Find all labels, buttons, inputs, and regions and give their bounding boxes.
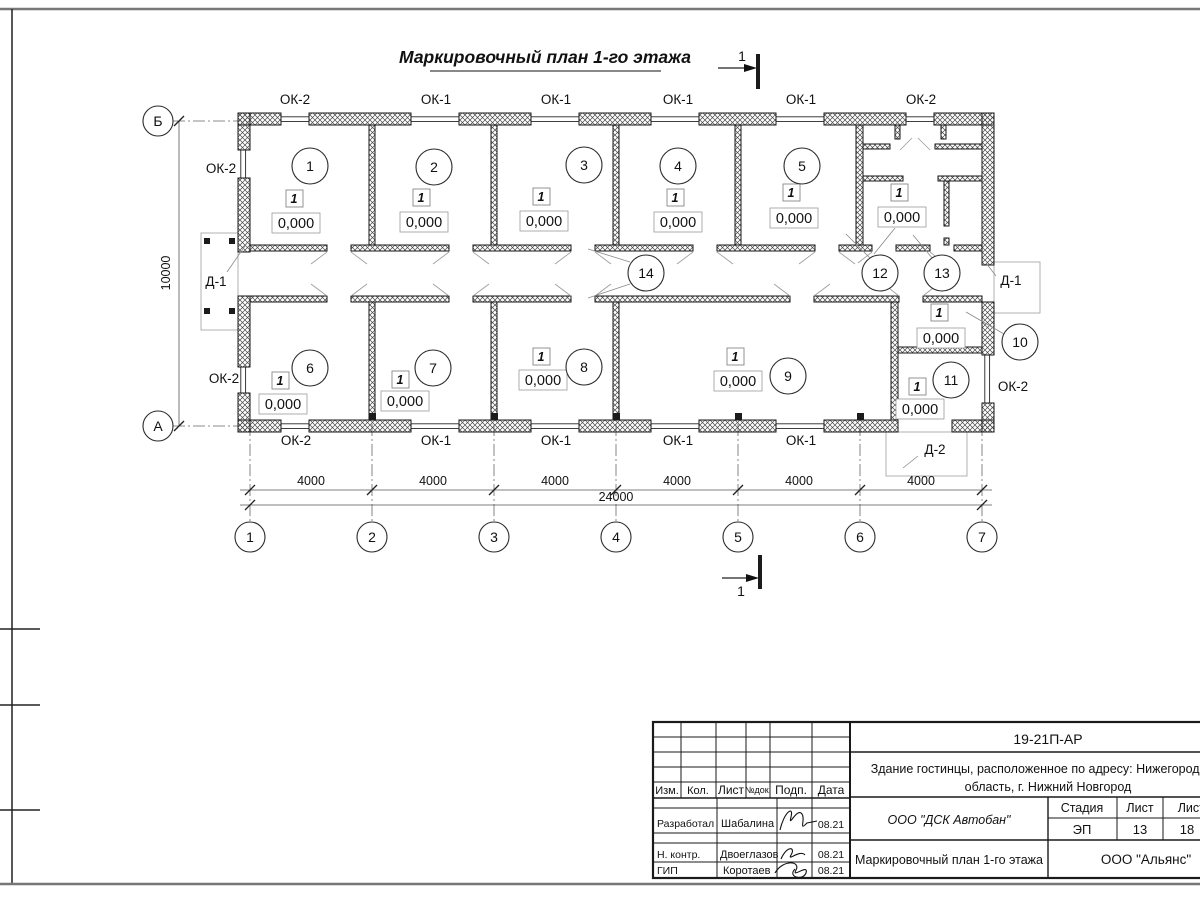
- drawing-sheet: Маркировочный план 1-го этажа 1 1: [0, 0, 1200, 900]
- room-number: 3: [580, 157, 588, 173]
- window-label: ОК-2: [209, 371, 239, 386]
- dimension-label: 4000: [419, 474, 447, 488]
- floor-marker: 1: [788, 186, 795, 200]
- elevation-value: 0,000: [776, 211, 812, 227]
- door-label: Д-2: [924, 442, 945, 457]
- window-label: ОК-1: [786, 92, 816, 107]
- title-block: Изм. Кол. Лист №док. Подп. Дата Разработ…: [653, 722, 1200, 878]
- elevation-value: 0,000: [923, 331, 959, 347]
- window-label: ОК-2: [906, 92, 936, 107]
- room-number: 9: [784, 368, 792, 384]
- floor-marker: 1: [936, 306, 943, 320]
- stage-label: Стадия: [1061, 801, 1104, 815]
- rev-header: Кол.: [687, 785, 709, 797]
- room-number: 10: [1012, 334, 1028, 350]
- door-label: Д-1: [1000, 273, 1021, 288]
- section-label: 1: [738, 48, 746, 64]
- axis-label: 5: [734, 529, 742, 545]
- elevation-value: 0,000: [660, 215, 696, 231]
- floor-marker: 1: [291, 192, 298, 206]
- dimension-label: 4000: [663, 474, 691, 488]
- signatory-date: 08.21: [818, 819, 844, 831]
- elevation-value: 0,000: [265, 397, 301, 413]
- section-label: 1: [737, 583, 745, 599]
- room-number: 14: [638, 265, 654, 281]
- window-label: ОК-1: [421, 433, 451, 448]
- elevation-value: 0,000: [525, 373, 561, 389]
- dimension-depth-label: 10000: [159, 256, 173, 291]
- room-number: 7: [429, 360, 437, 376]
- floor-marker: 1: [538, 190, 545, 204]
- elevation-value: 0,000: [720, 374, 756, 390]
- floor-marker: 1: [672, 191, 679, 205]
- project-name-line1: Здание гостинцы, расположенное по адресу…: [871, 762, 1200, 776]
- room-number: 11: [944, 372, 959, 388]
- dimension-total-label: 24000: [599, 490, 634, 504]
- elevation-value: 0,000: [884, 210, 920, 226]
- signatory-name: Двоеглазов: [720, 849, 779, 861]
- axis-label: Б: [153, 113, 162, 129]
- signatory-name: Коротаев: [723, 865, 771, 877]
- signatory-name: Шабалина: [721, 818, 775, 830]
- dimension-label: 4000: [297, 474, 325, 488]
- axis-label: 2: [368, 529, 376, 545]
- sheet-label: Лист: [1126, 801, 1153, 815]
- floor-marker: 1: [538, 350, 545, 364]
- axis-label: 6: [856, 529, 864, 545]
- signatory-date: 08.21: [818, 865, 844, 877]
- room-number: 6: [306, 360, 314, 376]
- client-org: ООО "Альянс": [1101, 852, 1191, 867]
- elevation-value: 0,000: [526, 214, 562, 230]
- contractor-org: ООО "ДСК Автобан": [888, 813, 1012, 827]
- floor-marker: 1: [896, 186, 903, 200]
- dimension-label: 4000: [785, 474, 813, 488]
- elevation-value: 0,000: [278, 216, 314, 232]
- floor-marker: 1: [418, 191, 425, 205]
- section-mark-top: 1: [718, 48, 760, 89]
- window-label: ОК-1: [541, 92, 571, 107]
- window-label: ОК-1: [786, 433, 816, 448]
- page-title: Маркировочный план 1-го этажа: [399, 47, 691, 67]
- project-name-line2: область, г. Нижний Новгород: [965, 780, 1132, 794]
- elevation-value: 0,000: [406, 215, 442, 231]
- rev-header: Дата: [818, 783, 845, 797]
- signatory-role: ГИП: [657, 865, 678, 877]
- section-mark-bottom: 1: [722, 555, 762, 599]
- axis-label: А: [153, 418, 163, 434]
- room-number: 2: [430, 159, 438, 175]
- axis-label: 7: [978, 529, 986, 545]
- floor-marker: 1: [914, 380, 921, 394]
- floor-marker: 1: [732, 350, 739, 364]
- window-label: ОК-1: [663, 433, 693, 448]
- door-label: Д-1: [205, 274, 226, 289]
- floor-marker: 1: [277, 374, 284, 388]
- elevation-value: 0,000: [902, 402, 938, 418]
- axis-label: 1: [246, 529, 254, 545]
- axis-label: 4: [612, 529, 620, 545]
- dimension-label: 4000: [907, 474, 935, 488]
- drawing-heading: Маркировочный план 1-го этажа: [399, 47, 691, 71]
- rev-header: Подп.: [775, 783, 807, 797]
- stage-value: ЭП: [1073, 822, 1092, 837]
- room-number: 13: [934, 265, 950, 281]
- doc-number: 19-21П-АР: [1013, 731, 1082, 747]
- signatory-role: Н. контр.: [657, 849, 700, 861]
- window-label: ОК-2: [206, 161, 236, 176]
- dimension-label: 4000: [541, 474, 569, 488]
- room-number: 4: [674, 158, 682, 174]
- room-number: 5: [798, 158, 806, 174]
- window-label: ОК-1: [663, 92, 693, 107]
- window-label: ОК-1: [421, 92, 451, 107]
- blueprint-canvas: Маркировочный план 1-го этажа 1 1: [0, 0, 1200, 900]
- window-label: ОК-2: [998, 379, 1028, 394]
- elevation-value: 0,000: [387, 394, 423, 410]
- floor-marker: 1: [397, 373, 404, 387]
- window-label: ОК-2: [280, 92, 310, 107]
- rev-header: Изм.: [655, 785, 679, 797]
- signatory-role: Разработал: [657, 818, 714, 830]
- signatory-date: 08.21: [818, 849, 844, 861]
- rev-header: №док.: [745, 785, 771, 795]
- room-number: 1: [306, 158, 314, 174]
- rev-header: Лист: [718, 783, 745, 797]
- sheets-label: Листов: [1178, 801, 1200, 815]
- room-number: 8: [580, 359, 588, 375]
- axis-label: 3: [490, 529, 498, 545]
- window-label: ОК-2: [281, 433, 311, 448]
- room-number: 12: [872, 265, 888, 281]
- room-number-bubbles: 1 2 3 4 5 6 7 8 9 10 11 12 13 14: [292, 147, 1038, 398]
- sheet-number: 13: [1133, 822, 1147, 837]
- window-label: ОК-1: [541, 433, 571, 448]
- sheets-total: 18: [1180, 822, 1194, 837]
- drawing-title-cell: Маркировочный план 1-го этажа: [855, 853, 1043, 867]
